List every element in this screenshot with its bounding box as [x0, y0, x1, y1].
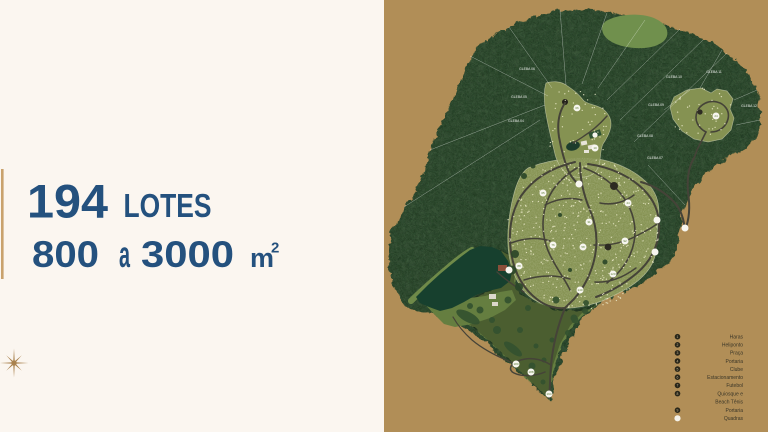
svg-text:24: 24 — [714, 114, 718, 118]
svg-text:58: 58 — [581, 245, 585, 249]
svg-text:05: 05 — [541, 191, 545, 195]
svg-text:800: 800 — [32, 234, 99, 275]
svg-text:3000: 3000 — [141, 234, 234, 275]
svg-text:2: 2 — [271, 240, 279, 257]
svg-text:GLEBA 10: GLEBA 10 — [666, 75, 682, 79]
svg-text:4: 4 — [677, 359, 679, 363]
svg-text:Futebol: Futebol — [726, 383, 743, 389]
svg-text:GLEBA 04: GLEBA 04 — [508, 119, 524, 123]
svg-text:GLEBA 07: GLEBA 07 — [647, 156, 663, 160]
svg-text:180: 180 — [513, 362, 518, 366]
svg-text:88: 88 — [517, 264, 521, 268]
svg-text:92: 92 — [623, 239, 627, 243]
svg-text:8: 8 — [677, 392, 679, 396]
svg-text:a: a — [119, 234, 130, 275]
svg-text:Portaria: Portaria — [725, 408, 743, 414]
svg-text:194: 194 — [27, 176, 109, 229]
svg-text:Estacionamento: Estacionamento — [707, 375, 743, 381]
svg-text:194: 194 — [546, 392, 551, 396]
svg-text:GLEBA 09: GLEBA 09 — [648, 103, 664, 107]
svg-text:GLEBA 06: GLEBA 06 — [519, 67, 535, 71]
svg-text:5: 5 — [677, 367, 679, 371]
svg-text:6: 6 — [677, 376, 679, 380]
svg-text:06: 06 — [575, 106, 579, 110]
svg-text:44: 44 — [626, 201, 630, 205]
svg-text:LOTES: LOTES — [124, 187, 212, 224]
svg-text:Clube: Clube — [730, 367, 743, 373]
svg-text:120: 120 — [610, 272, 615, 276]
svg-text:188: 188 — [528, 370, 533, 374]
svg-text:3: 3 — [677, 351, 679, 355]
svg-text:Quadras: Quadras — [724, 416, 744, 422]
svg-text:140: 140 — [577, 288, 582, 292]
svg-text:GLEBA 08: GLEBA 08 — [637, 134, 653, 138]
svg-text:10: 10 — [593, 146, 597, 150]
svg-text:Haras: Haras — [730, 335, 744, 341]
svg-text:Beach Tênis: Beach Tênis — [715, 399, 743, 405]
svg-text:7: 7 — [677, 384, 679, 388]
svg-text:GLEBA 05: GLEBA 05 — [511, 95, 527, 99]
svg-text:Quiosque e: Quiosque e — [717, 391, 743, 397]
svg-text:76: 76 — [551, 243, 555, 247]
svg-text:1: 1 — [677, 335, 679, 339]
svg-text:9: 9 — [677, 409, 679, 413]
svg-text:2: 2 — [677, 343, 679, 347]
svg-text:Portaria: Portaria — [725, 359, 743, 365]
svg-text:31: 31 — [587, 220, 591, 224]
svg-text:GLEBA 11: GLEBA 11 — [706, 70, 722, 74]
svg-text:Heliponto: Heliponto — [722, 343, 743, 349]
svg-text:Praça: Praça — [730, 351, 743, 357]
svg-text:GLEBA 12: GLEBA 12 — [741, 104, 757, 108]
